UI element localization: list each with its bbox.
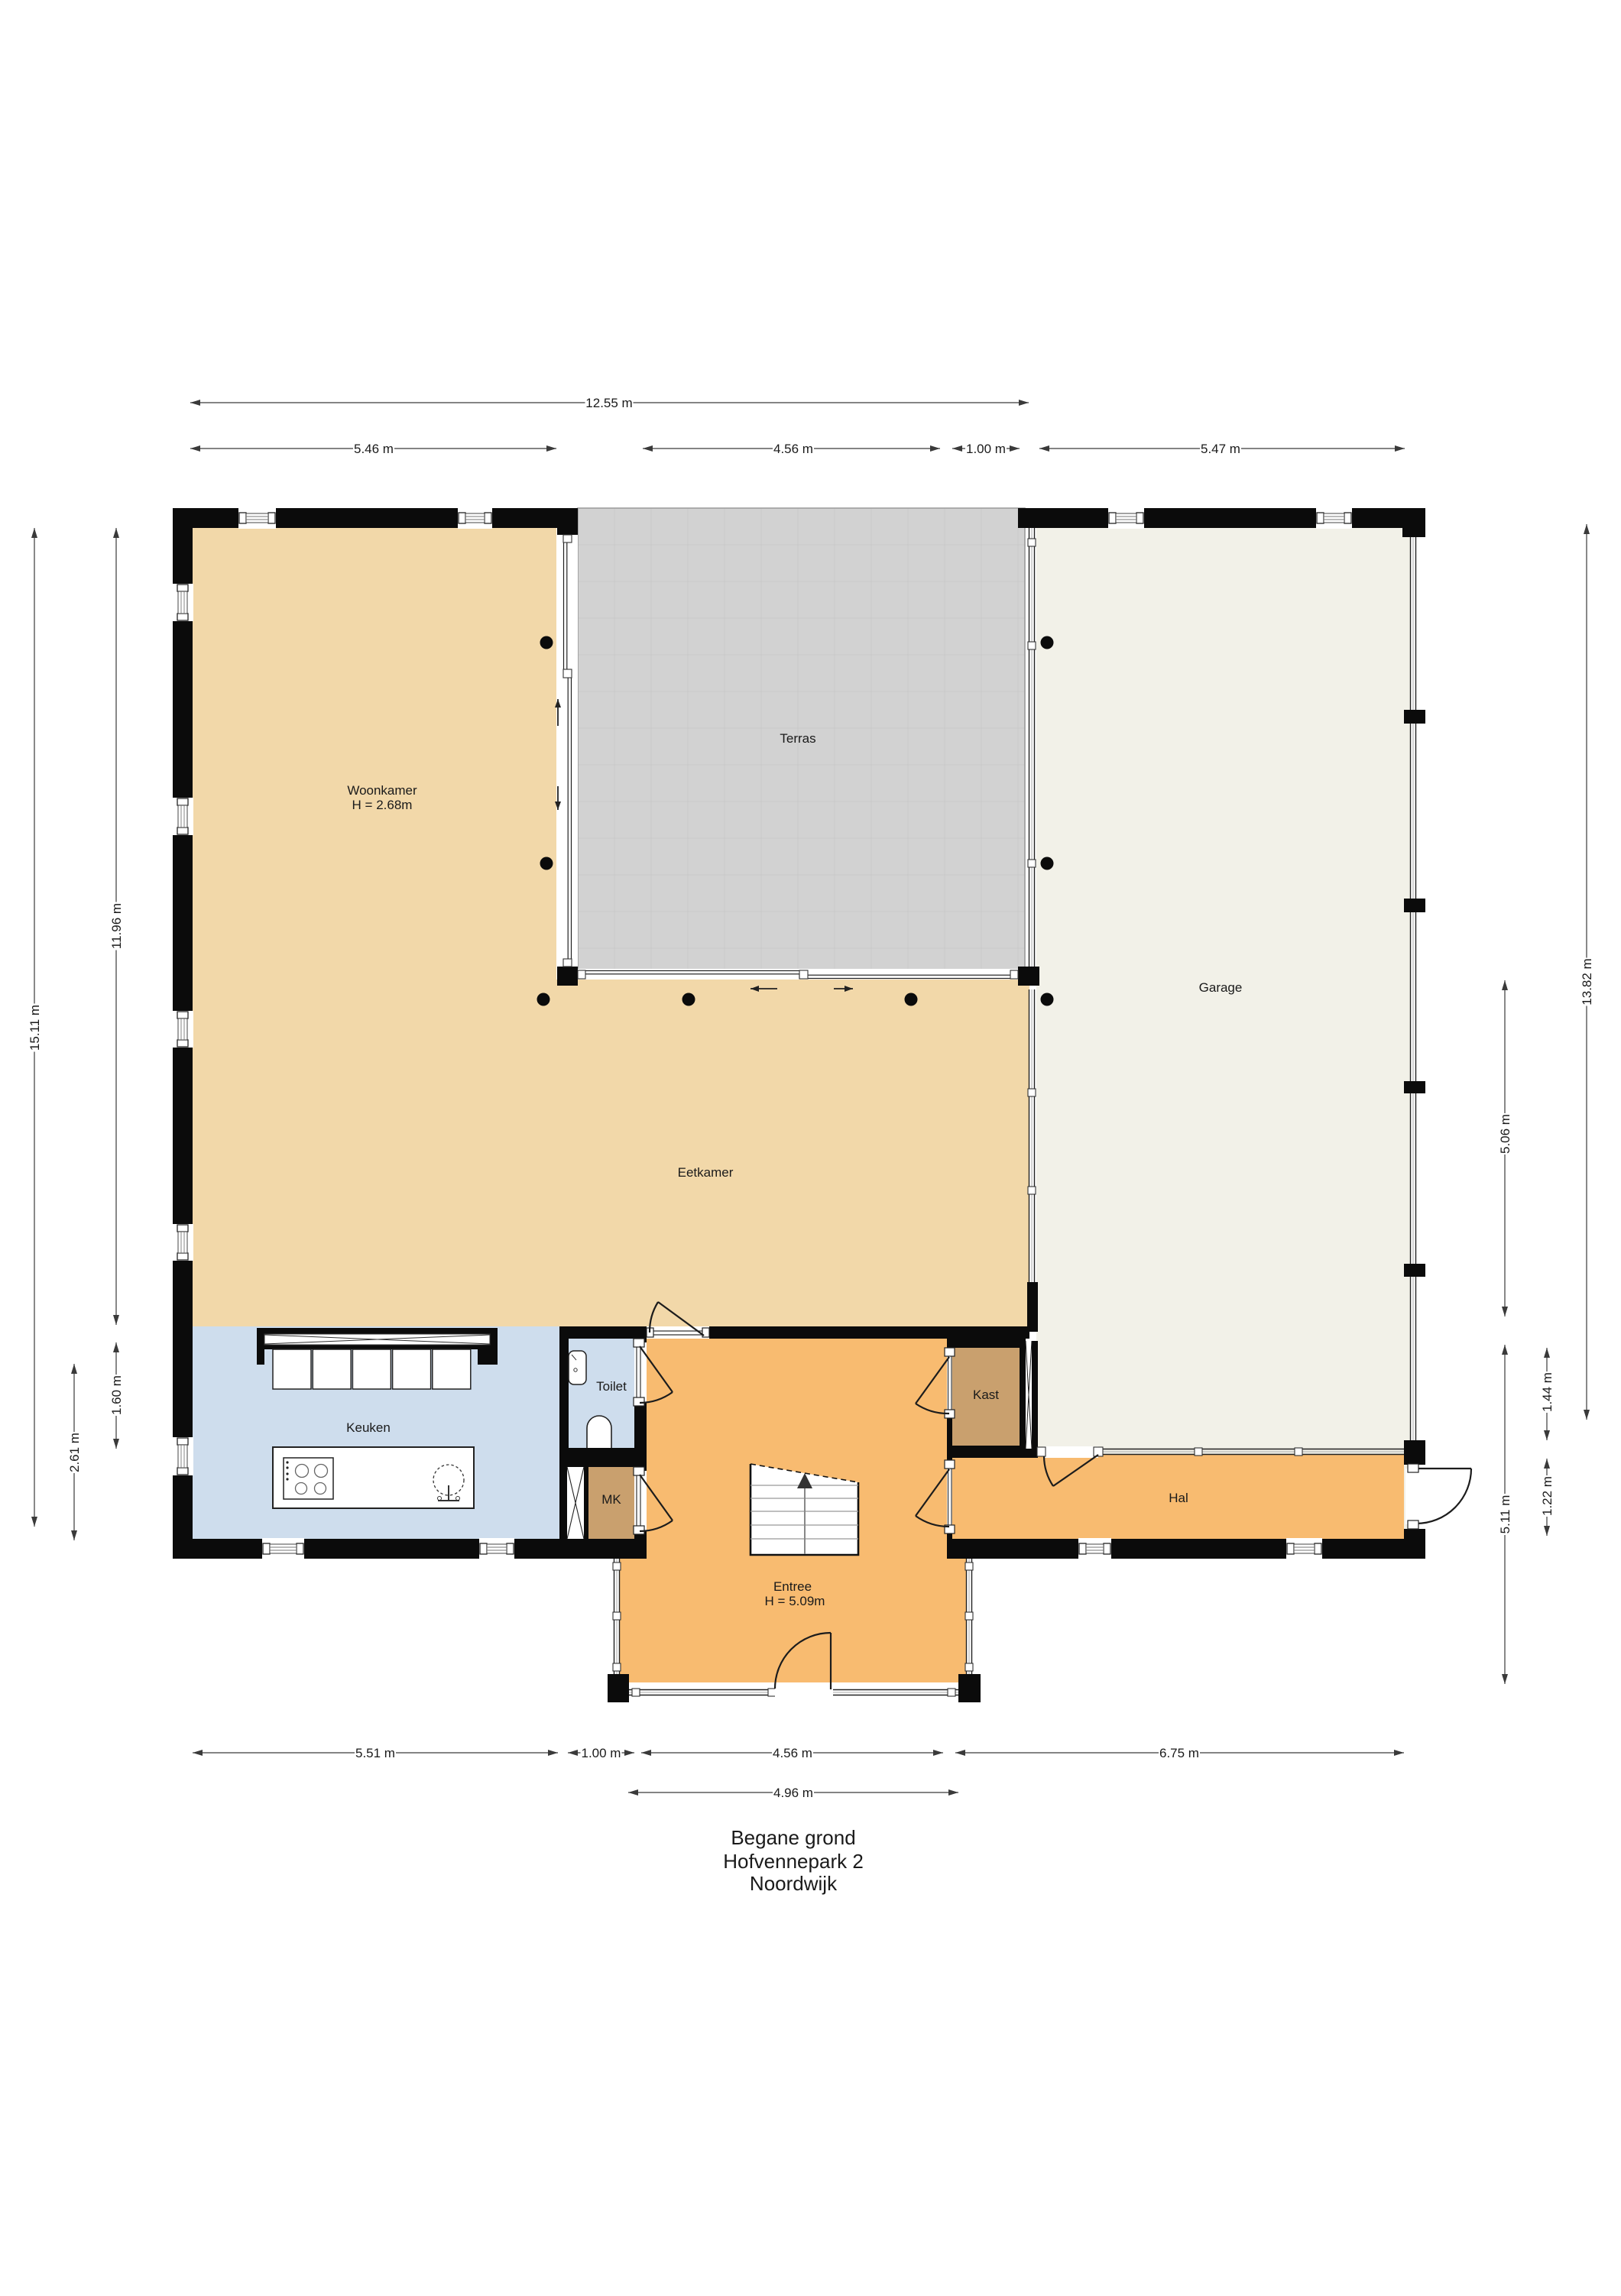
svg-text:Hofvennepark 2: Hofvennepark 2: [723, 1850, 864, 1873]
svg-text:Toilet: Toilet: [596, 1379, 627, 1394]
svg-text:MK: MK: [601, 1492, 621, 1507]
svg-text:1.44 m: 1.44 m: [1540, 1372, 1555, 1412]
svg-text:11.96 m: 11.96 m: [109, 903, 124, 949]
svg-text:H = 2.68m: H = 2.68m: [352, 798, 413, 812]
svg-text:Woonkamer: Woonkamer: [347, 783, 417, 798]
svg-text:Hal: Hal: [1169, 1491, 1188, 1505]
svg-text:H = 5.09m: H = 5.09m: [765, 1594, 825, 1608]
svg-text:5.11 m: 5.11 m: [1498, 1495, 1512, 1534]
svg-text:Keuken: Keuken: [346, 1420, 391, 1435]
svg-text:4.96 m: 4.96 m: [773, 1786, 813, 1800]
svg-text:4.56 m: 4.56 m: [773, 442, 813, 456]
svg-text:5.47 m: 5.47 m: [1201, 442, 1240, 456]
svg-text:Eetkamer: Eetkamer: [678, 1165, 734, 1180]
svg-text:15.11 m: 15.11 m: [28, 1005, 42, 1051]
svg-text:1.00 m: 1.00 m: [582, 1746, 621, 1760]
svg-text:Entree: Entree: [773, 1579, 812, 1594]
svg-text:4.56 m: 4.56 m: [773, 1746, 812, 1760]
svg-text:Noordwijk: Noordwijk: [750, 1872, 838, 1895]
svg-text:5.06 m: 5.06 m: [1498, 1114, 1512, 1154]
svg-text:Kast: Kast: [973, 1388, 999, 1402]
svg-text:2.61 m: 2.61 m: [67, 1433, 82, 1472]
svg-text:5.46 m: 5.46 m: [354, 442, 394, 456]
svg-text:13.82 m: 13.82 m: [1580, 958, 1594, 1005]
svg-text:12.55 m: 12.55 m: [585, 396, 632, 410]
svg-text:1.60 m: 1.60 m: [109, 1375, 124, 1415]
svg-text:Begane grond: Begane grond: [731, 1826, 855, 1849]
svg-text:1.22 m: 1.22 m: [1540, 1476, 1555, 1516]
svg-text:1.00 m: 1.00 m: [966, 442, 1006, 456]
svg-text:Terras: Terras: [780, 731, 815, 746]
svg-text:5.51 m: 5.51 m: [355, 1746, 395, 1760]
svg-text:6.75 m: 6.75 m: [1159, 1746, 1199, 1760]
svg-text:Garage: Garage: [1199, 980, 1243, 995]
